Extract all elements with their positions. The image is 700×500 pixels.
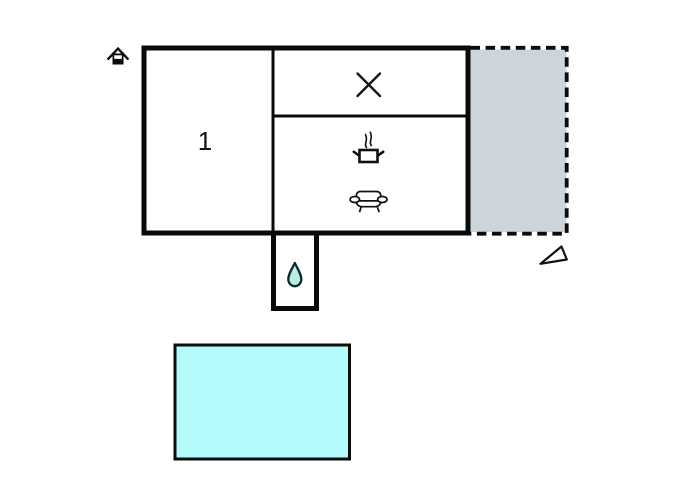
svg-text:1: 1 bbox=[198, 126, 212, 156]
